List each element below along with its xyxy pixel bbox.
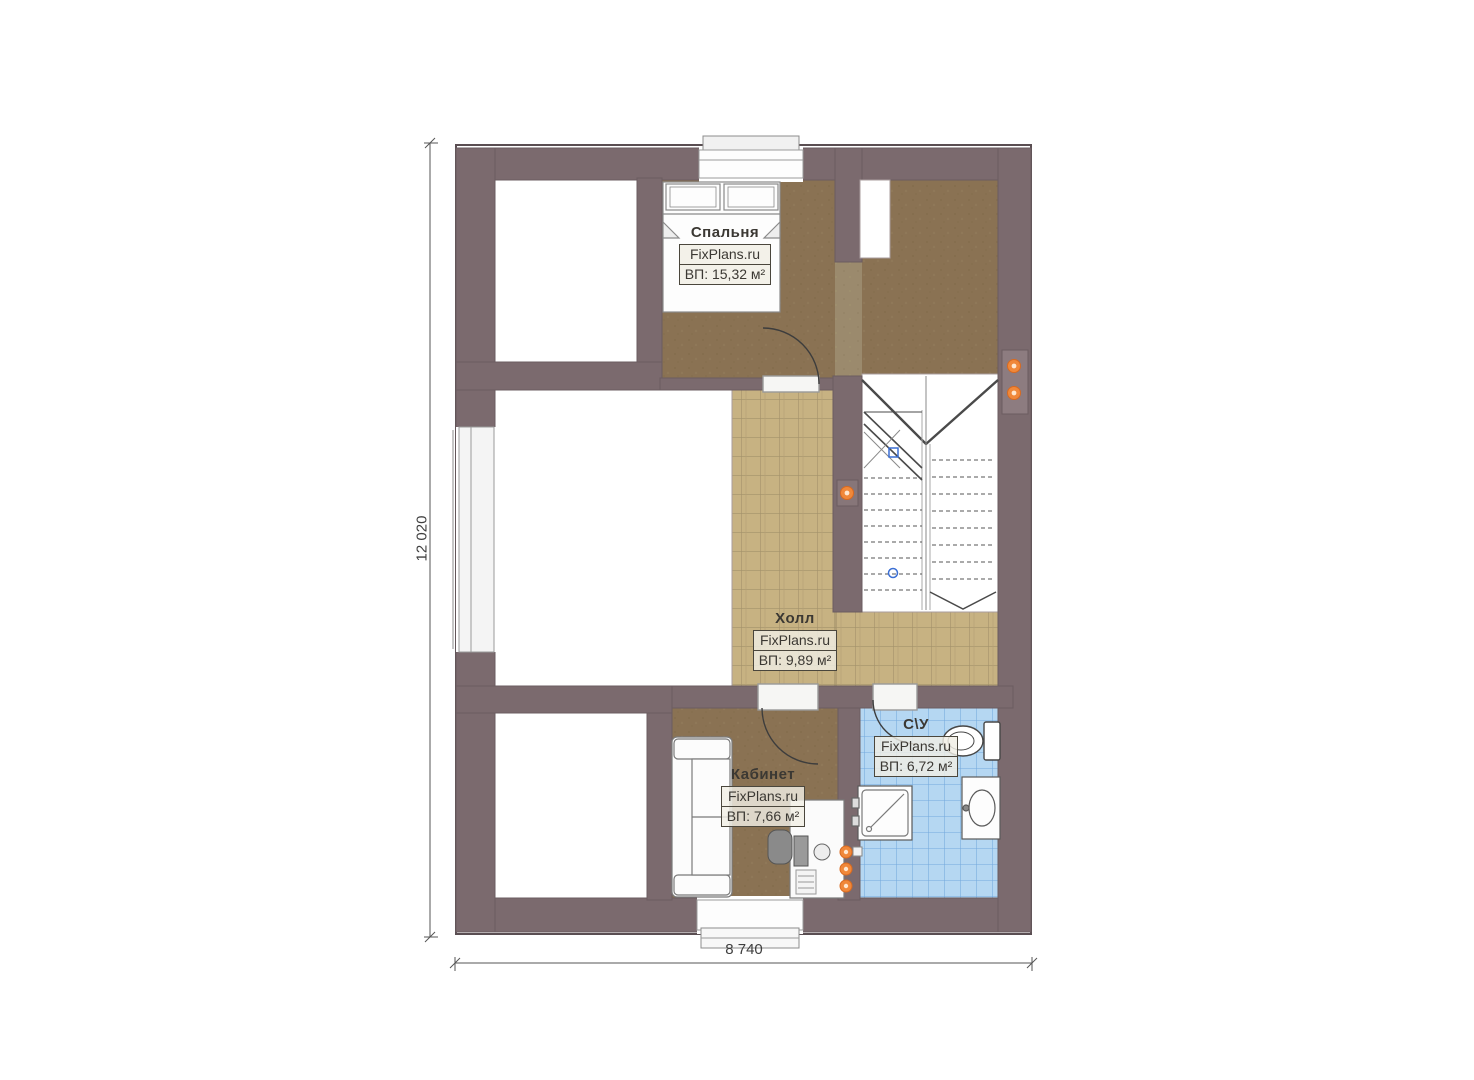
- office-door-opening: [758, 684, 818, 710]
- watermark: FixPlans.ru: [722, 787, 805, 806]
- bedroom-name: Спальня: [655, 224, 795, 241]
- hall-name: Холл: [725, 610, 865, 627]
- stairwell: [862, 374, 1000, 612]
- bathroom-info-box: FixPlans.ru ВП: 6,72 м²: [874, 736, 959, 777]
- wall-right: [998, 148, 1031, 932]
- watermark: FixPlans.ru: [754, 631, 837, 650]
- office-name: Кабинет: [693, 766, 833, 783]
- desk-chair: [768, 830, 792, 864]
- wall-bottom-left-room-top: [456, 686, 672, 713]
- bedroom-door-opening: [763, 376, 819, 392]
- room-top-left: [495, 180, 637, 362]
- bedroom-info-box: FixPlans.ru ВП: 15,32 м²: [679, 244, 771, 285]
- watermark: FixPlans.ru: [680, 245, 770, 264]
- wall-bottom-left-room-right: [647, 713, 672, 900]
- passage-floor: [835, 262, 862, 376]
- bedroom-area: ВП: 15,32 м²: [680, 264, 770, 284]
- floor-plan-drawing: [0, 0, 1474, 1080]
- desk-lamp: [814, 844, 830, 860]
- office-info-box: FixPlans.ru ВП: 7,66 м²: [721, 786, 806, 827]
- hall-info-box: FixPlans.ru ВП: 9,89 м²: [753, 630, 838, 671]
- bedroom-label: Спальня FixPlans.ru ВП: 15,32 м²: [655, 224, 795, 285]
- floor-plan-page: Спальня FixPlans.ru ВП: 15,32 м² Холл Fi…: [0, 0, 1474, 1080]
- wardrobe-niche: [860, 180, 890, 258]
- bathroom-name: С\У: [846, 716, 986, 733]
- bathroom-label: С\У FixPlans.ru ВП: 6,72 м²: [846, 716, 986, 777]
- office-label: Кабинет FixPlans.ru ВП: 7,66 м²: [693, 766, 833, 827]
- dimension-left: 12 020: [414, 469, 431, 609]
- window-top: [699, 136, 803, 182]
- window-left: [453, 427, 496, 652]
- room-middle-left: [495, 390, 732, 686]
- bathroom-door-opening: [873, 684, 917, 710]
- watermark: FixPlans.ru: [875, 737, 958, 756]
- wall-spine-top: [835, 148, 862, 262]
- wall-under-top-left-room: [456, 362, 662, 390]
- switch-marker: [853, 847, 862, 856]
- dimension-bottom: 8 740: [699, 941, 789, 958]
- hall-label: Холл FixPlans.ru ВП: 9,89 м²: [725, 610, 865, 671]
- office-area: ВП: 7,66 м²: [722, 806, 805, 826]
- hall-area: ВП: 9,89 м²: [754, 650, 837, 670]
- monitor: [794, 836, 808, 866]
- shower: [852, 786, 912, 840]
- room-bottom-left: [495, 713, 647, 900]
- bathroom-area: ВП: 6,72 м²: [875, 756, 958, 776]
- sink: [962, 777, 1000, 839]
